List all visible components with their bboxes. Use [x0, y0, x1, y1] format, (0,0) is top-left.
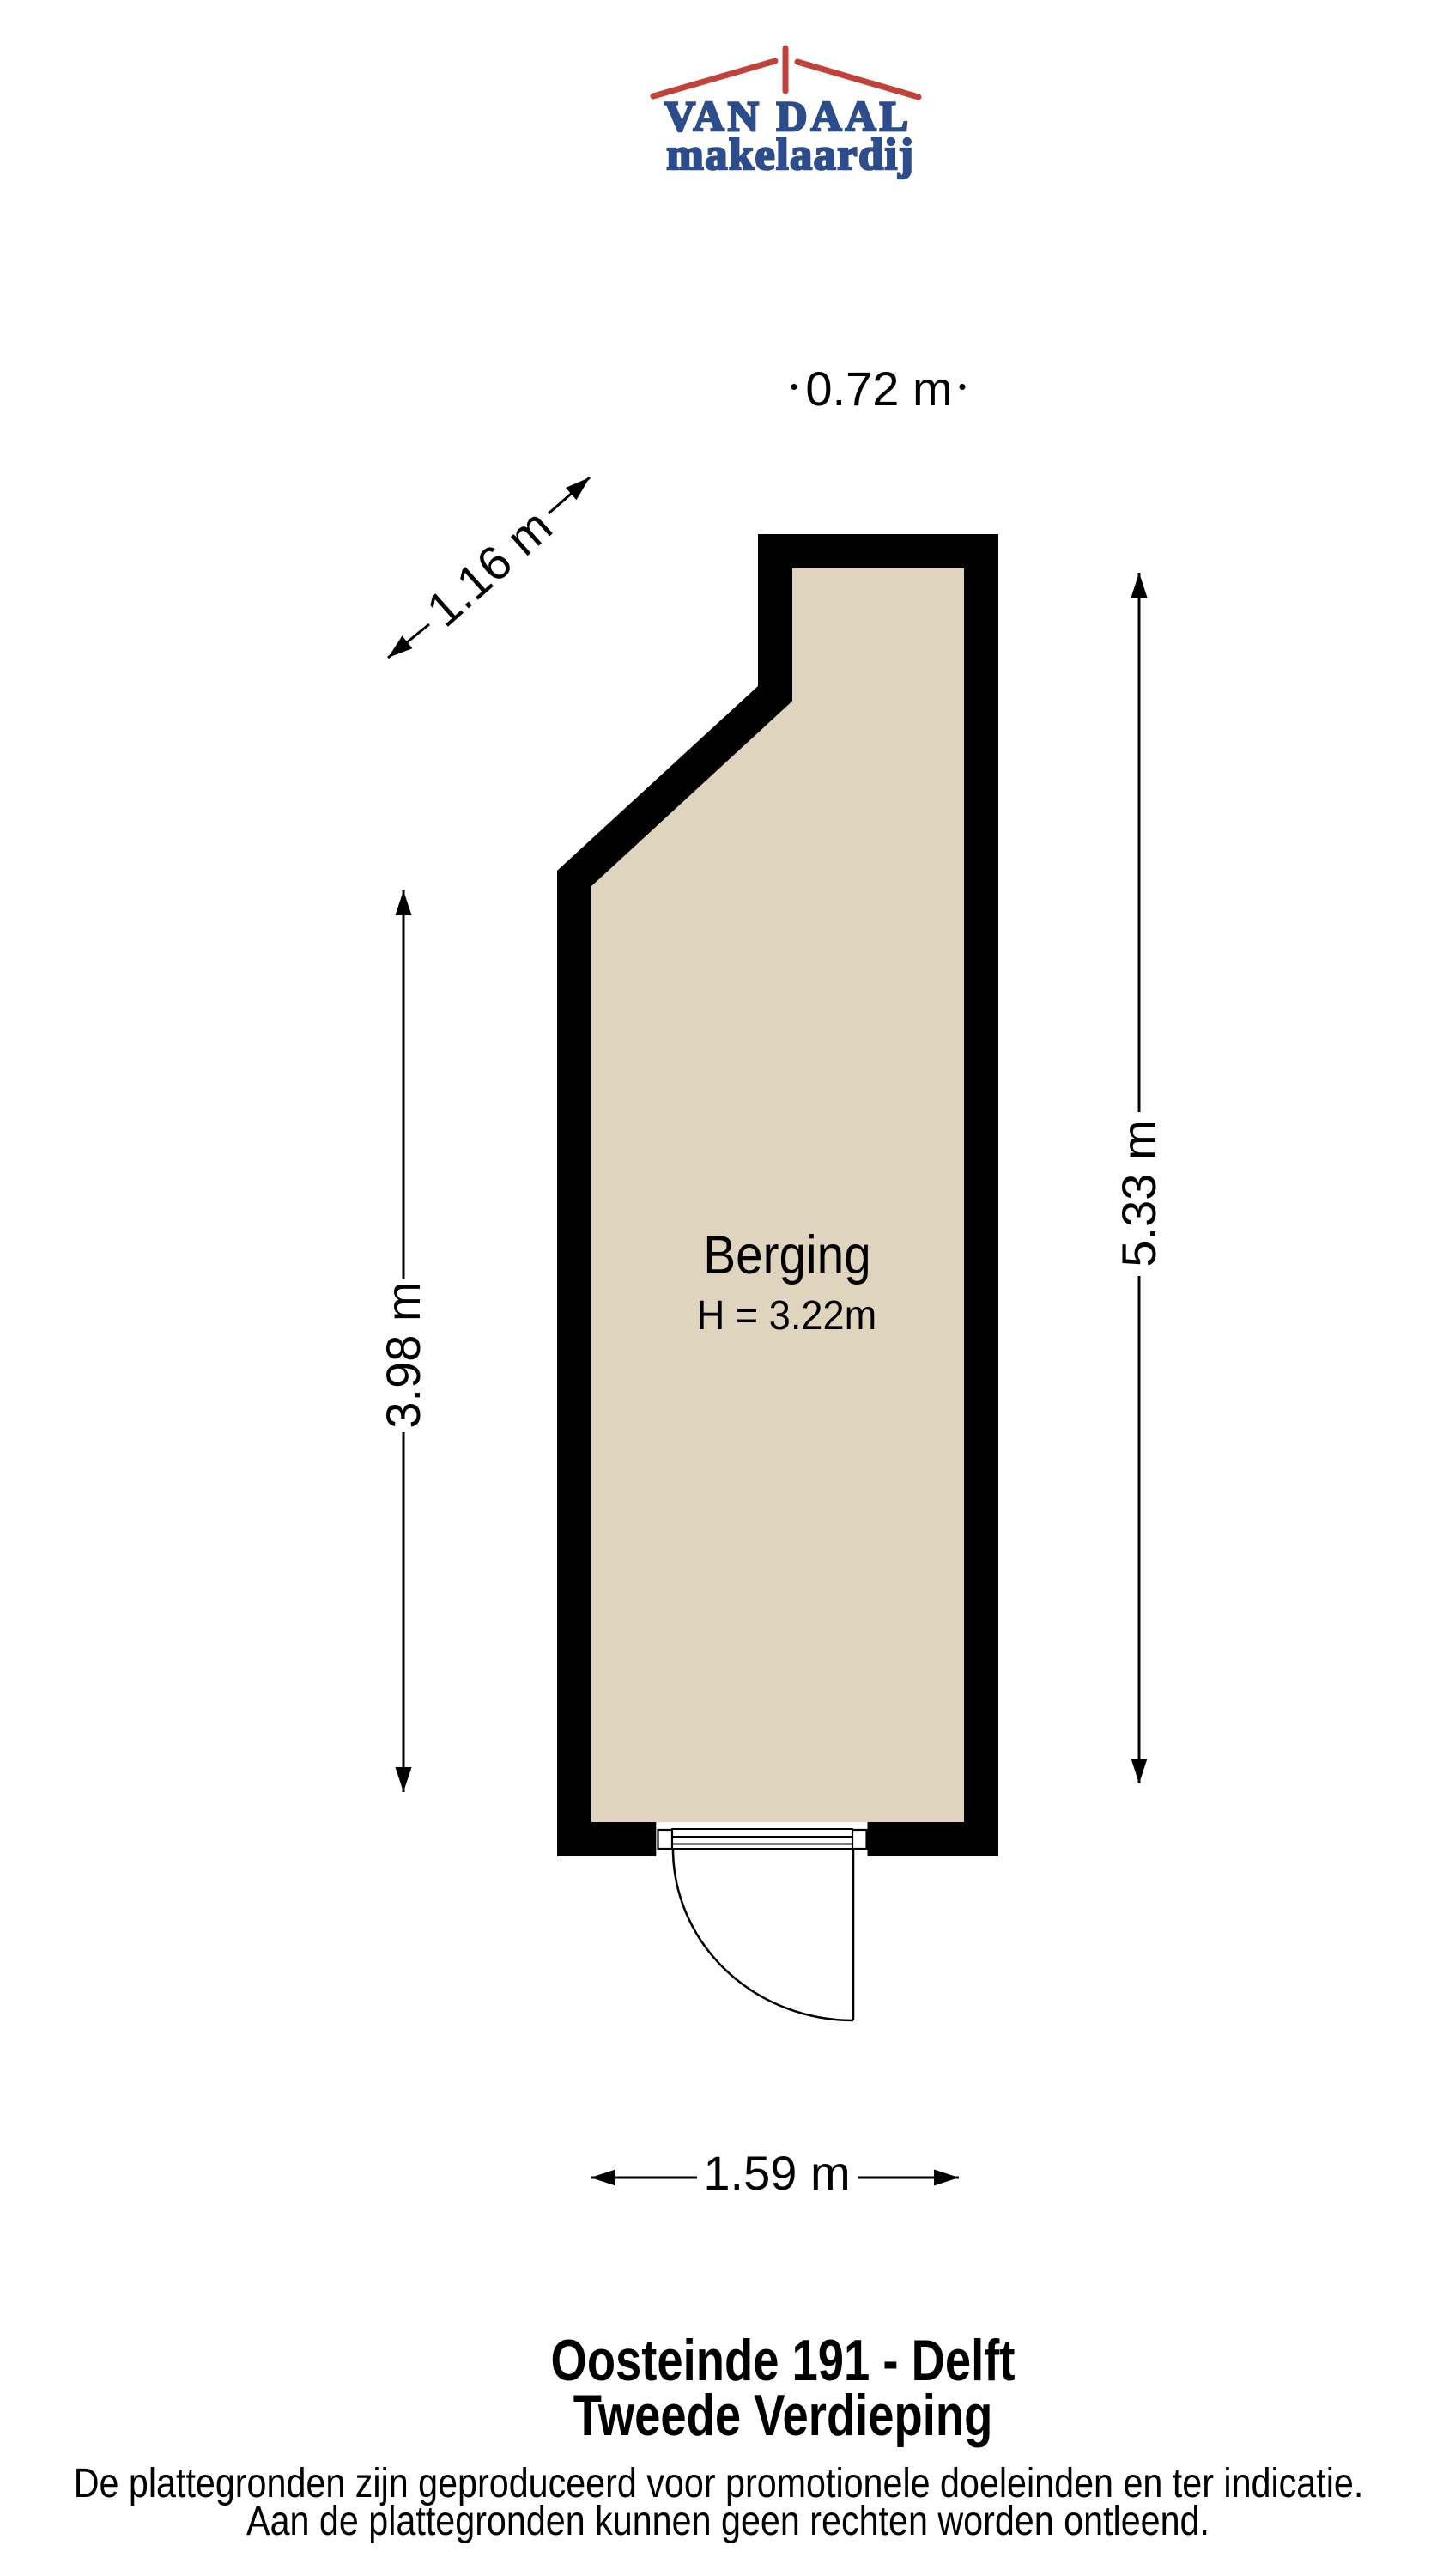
svg-text:Aan de plattegronden kunnen ge: Aan de plattegronden kunnen geen rechten…	[246, 2498, 1210, 2544]
svg-text:Berging: Berging	[703, 1224, 870, 1285]
svg-text:H = 3.22m: H = 3.22m	[697, 1292, 876, 1339]
svg-text:0.72 m: 0.72 m	[805, 361, 952, 416]
svg-text:1.59 m: 1.59 m	[703, 2146, 850, 2200]
svg-text:3.98 m: 3.98 m	[376, 1281, 430, 1428]
svg-text:1.16 m: 1.16 m	[416, 499, 562, 637]
svg-text:Tweede Verdieping: Tweede Verdieping	[573, 2383, 993, 2448]
svg-text:5.33 m: 5.33 m	[1112, 1120, 1166, 1267]
svg-text:makelaardij: makelaardij	[666, 131, 914, 179]
